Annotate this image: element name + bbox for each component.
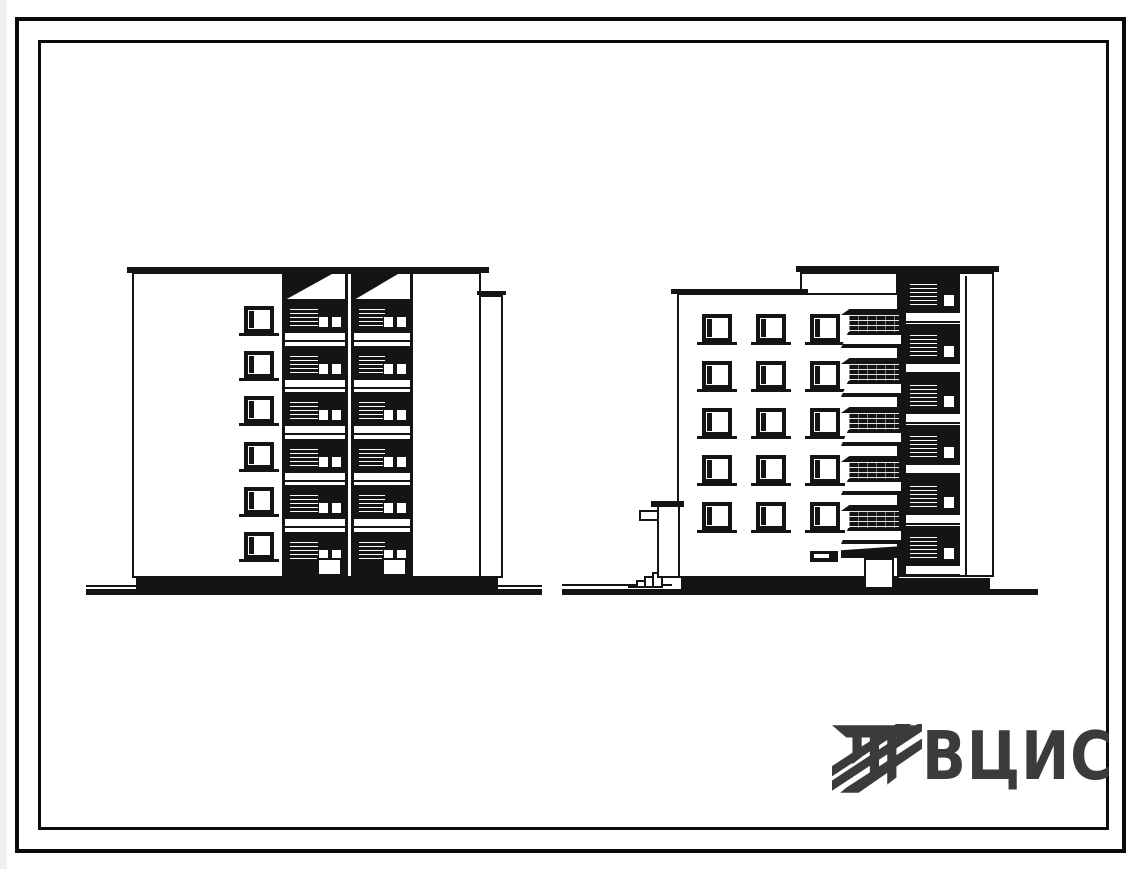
loggia-window-pane xyxy=(943,294,955,307)
window xyxy=(810,408,840,436)
attic-parapet xyxy=(800,272,898,295)
window xyxy=(810,502,840,530)
balcony-railing xyxy=(849,364,899,381)
side-loggia-parapet xyxy=(906,463,960,475)
window-sill xyxy=(751,436,791,439)
window-sill xyxy=(697,389,737,392)
window-sill xyxy=(697,530,737,533)
window xyxy=(702,408,732,436)
window xyxy=(702,361,732,389)
balcony-parapet xyxy=(841,479,901,495)
plinth xyxy=(681,578,990,589)
roof-slab-high xyxy=(796,266,999,272)
window-sill xyxy=(805,436,845,439)
balcony-railing xyxy=(849,511,899,528)
window-pane xyxy=(815,366,820,384)
window-pane xyxy=(707,366,712,384)
window xyxy=(756,455,786,483)
window-sill xyxy=(805,530,845,533)
side-loggia-recess xyxy=(906,377,960,412)
loggia-window-pane xyxy=(943,395,955,408)
window-pane xyxy=(815,319,820,337)
entrance-door xyxy=(864,558,894,589)
loggia-door-louvers xyxy=(910,284,937,305)
loggia-door-louvers xyxy=(910,436,937,457)
window-sill xyxy=(697,483,737,486)
window-pane xyxy=(707,319,712,337)
loggia-door-louvers xyxy=(910,385,937,406)
side-loggia-parapet xyxy=(906,564,960,576)
side-loggia-recess xyxy=(906,327,960,362)
window-pane xyxy=(761,366,766,384)
window-pane xyxy=(761,507,766,525)
window-sill xyxy=(697,342,737,345)
balcony-parapet xyxy=(841,430,901,446)
window-sill xyxy=(751,483,791,486)
loggia-window-pane xyxy=(943,496,955,509)
balcony-parapet xyxy=(841,381,901,397)
window xyxy=(702,502,732,530)
loggia-door-louvers xyxy=(910,486,937,507)
side-loggia-recess xyxy=(906,428,960,463)
window-pane xyxy=(707,413,712,431)
balcony-parapet xyxy=(841,528,901,544)
window-sill xyxy=(697,436,737,439)
loggia-window-pane xyxy=(943,446,955,459)
porch-bracket xyxy=(639,510,659,521)
balcony-railing xyxy=(849,462,899,479)
window-pane xyxy=(815,460,820,478)
window-pane xyxy=(707,507,712,525)
window-pane xyxy=(707,460,712,478)
balcony-railing xyxy=(849,315,899,332)
side-loggia-recess xyxy=(906,529,960,564)
window xyxy=(810,455,840,483)
window-pane xyxy=(815,507,820,525)
basement-window-pane xyxy=(814,554,829,558)
window-pane xyxy=(815,413,820,431)
window xyxy=(702,455,732,483)
window xyxy=(756,314,786,342)
window-pane xyxy=(761,413,766,431)
porch-canopy xyxy=(651,501,684,507)
drawing-sheet: ВЦИС xyxy=(0,0,1139,869)
window xyxy=(756,408,786,436)
balcony-parapet xyxy=(841,332,901,348)
window xyxy=(810,314,840,342)
side-wall-joint-line xyxy=(965,276,967,576)
loggia-window-pane xyxy=(943,547,955,560)
window-sill xyxy=(751,342,791,345)
window-pane xyxy=(761,460,766,478)
window-sill xyxy=(805,342,845,345)
publisher-emblem-icon xyxy=(832,724,922,794)
window-sill xyxy=(751,530,791,533)
publisher-logo-text: ВЦИС xyxy=(922,720,1113,792)
window-sill xyxy=(805,389,845,392)
window-sill xyxy=(751,389,791,392)
window xyxy=(702,314,732,342)
window-pane xyxy=(761,319,766,337)
roof-slab-main xyxy=(671,289,808,294)
side-loggia-recess xyxy=(906,276,960,311)
window xyxy=(810,361,840,389)
loggia-door-louvers xyxy=(910,537,937,558)
side-loggia-parapet xyxy=(906,311,960,323)
loggia-window-pane xyxy=(943,345,955,358)
porch-column xyxy=(657,505,680,578)
ground-line xyxy=(562,589,1038,595)
publisher-logo: ВЦИС xyxy=(826,718,1096,802)
window xyxy=(756,361,786,389)
side-loggia-recess xyxy=(906,478,960,513)
side-loggia-parapet xyxy=(906,513,960,525)
side-loggia-parapet xyxy=(906,412,960,424)
loggia-door-louvers xyxy=(910,335,937,356)
balcony-railing xyxy=(849,413,899,430)
side-loggia-parapet xyxy=(906,362,960,374)
window xyxy=(756,502,786,530)
window-sill xyxy=(805,483,845,486)
